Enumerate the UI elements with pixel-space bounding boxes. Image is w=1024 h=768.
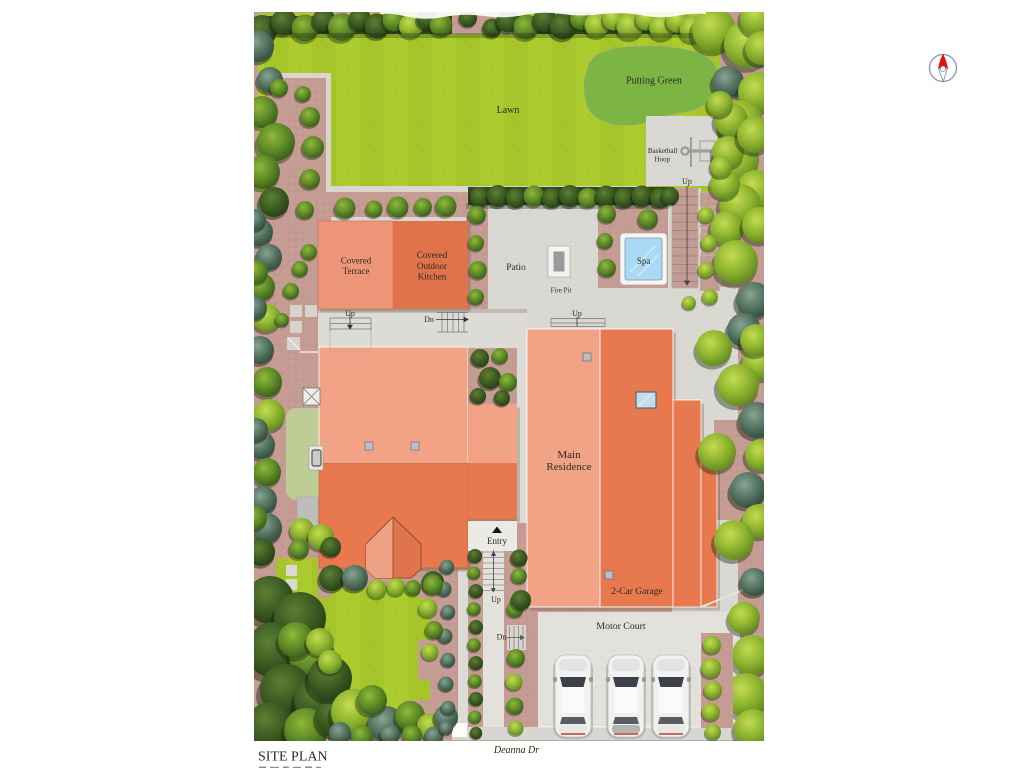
svg-text:Spa: Spa	[637, 256, 651, 266]
svg-text:SITE PLAN: SITE PLAN	[258, 750, 328, 765]
svg-text:Terrace: Terrace	[343, 266, 370, 276]
svg-text:Basketball: Basketball	[648, 147, 678, 155]
svg-text:Entry: Entry	[487, 536, 507, 546]
svg-text:Patio: Patio	[506, 263, 526, 273]
svg-text:Dn: Dn	[424, 315, 434, 324]
svg-text:Dn: Dn	[497, 633, 507, 642]
svg-text:Outdoor: Outdoor	[417, 261, 447, 271]
svg-text:Putting Green: Putting Green	[626, 76, 682, 87]
svg-text:Fire Pit: Fire Pit	[551, 286, 572, 294]
svg-text:Deanna Dr: Deanna Dr	[493, 745, 539, 756]
svg-text:Main: Main	[557, 449, 581, 461]
svg-text:Lawn: Lawn	[497, 105, 520, 116]
svg-text:Covered: Covered	[341, 256, 372, 266]
svg-text:Kitchen: Kitchen	[418, 272, 447, 282]
svg-text:Residence: Residence	[546, 461, 591, 473]
svg-text:Motor Court: Motor Court	[596, 621, 646, 632]
svg-text:Up: Up	[682, 177, 692, 186]
svg-text:Up: Up	[491, 595, 501, 604]
svg-text:Hoop: Hoop	[655, 156, 671, 164]
svg-text:Covered: Covered	[417, 250, 448, 260]
svg-text:2-Car Garage: 2-Car Garage	[611, 587, 662, 597]
svg-text:Up: Up	[572, 309, 582, 318]
